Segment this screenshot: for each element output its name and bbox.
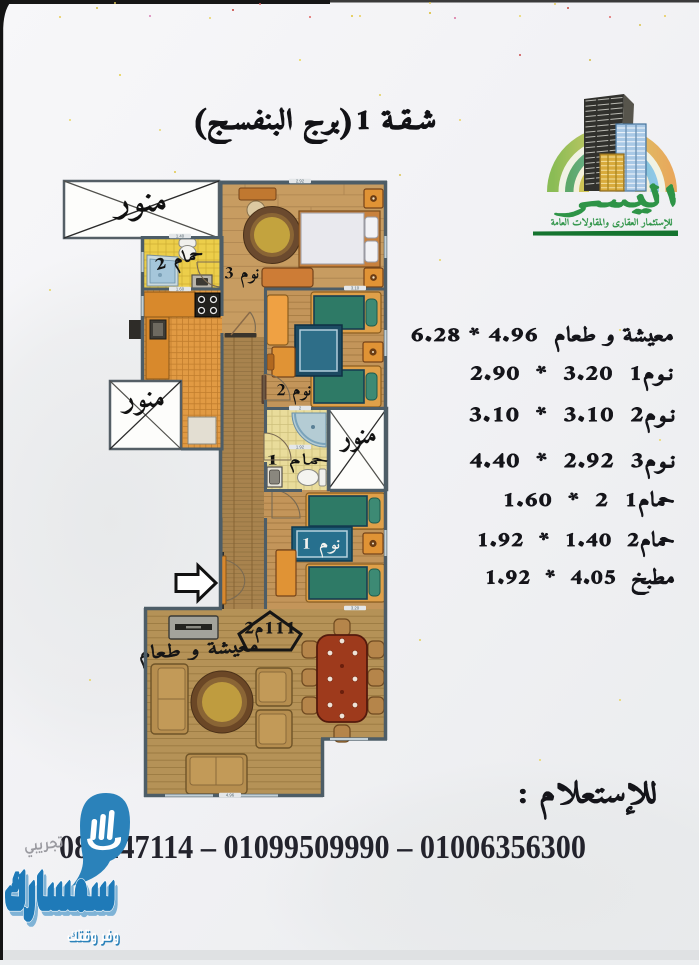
svg-text:3.10: 3.10 — [351, 286, 360, 291]
svg-text:2.92: 2.92 — [296, 179, 305, 184]
svg-text:1.92: 1.92 — [296, 445, 305, 450]
svg-text:3.20: 3.20 — [351, 606, 360, 611]
svg-text:1.40: 1.40 — [176, 234, 185, 239]
svg-text:4.96: 4.96 — [226, 793, 235, 798]
svg-text:083147114 – 01099509990 – 0100: 083147114 – 01099509990 – 01006356300 — [59, 829, 586, 866]
svg-text:1.60: 1.60 — [176, 287, 185, 292]
